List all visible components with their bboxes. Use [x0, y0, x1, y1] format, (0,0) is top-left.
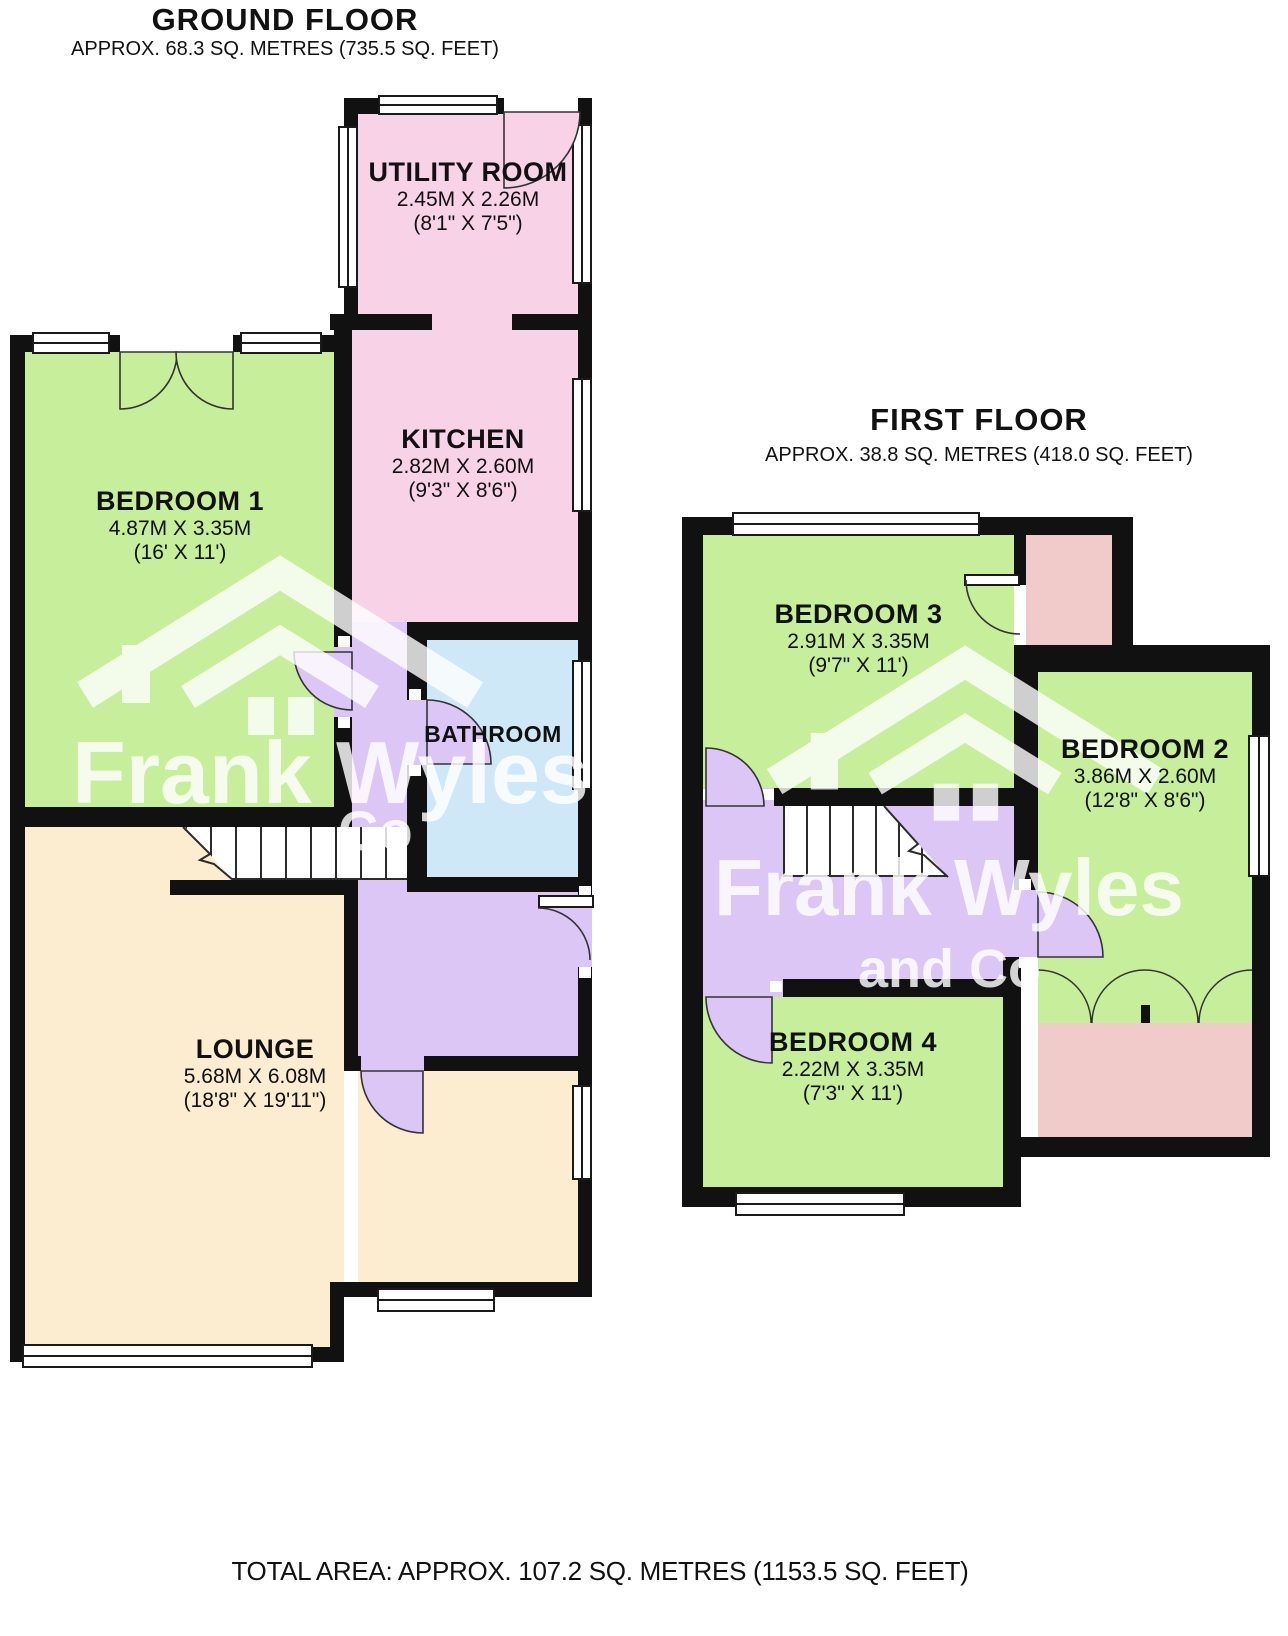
room-dims-metric: 2.45M X 2.26M — [368, 188, 568, 213]
wall — [10, 827, 25, 1362]
room-dims-imperial: (18'8" X 19'11") — [95, 1089, 415, 1114]
french-door-opening — [120, 335, 233, 352]
wardrobe-door-arc — [1145, 970, 1198, 1023]
front-door-leaf — [538, 895, 594, 908]
room-name: BEDROOM 4 — [703, 1028, 1003, 1058]
wall — [170, 880, 345, 895]
wall — [1252, 645, 1270, 1157]
room-dims-metric: 2.91M X 3.35M — [703, 630, 1014, 655]
kitchen-label: KITCHEN 2.82M X 2.60M (9'3" X 8'6") — [348, 425, 578, 504]
room-name: KITCHEN — [348, 425, 578, 455]
room-name: BEDROOM 1 — [25, 487, 335, 517]
wardrobe-door-arc — [1199, 970, 1252, 1023]
wardrobe-door-arc — [1092, 970, 1145, 1023]
floorplan-page: GROUND FLOOR APPROX. 68.3 SQ. METRES (73… — [0, 0, 1288, 1636]
window — [32, 332, 110, 354]
window — [22, 1344, 313, 1368]
bedroom3-label: BEDROOM 3 2.91M X 3.35M (9'7" X 11') — [703, 600, 1014, 679]
wall — [407, 877, 592, 892]
wall — [1112, 517, 1133, 645]
first-floor-title: FIRST FLOOR — [729, 402, 1229, 438]
brand-watermark-text: Frank Wyles — [714, 842, 1184, 934]
room-name: BEDROOM 2 — [1038, 735, 1252, 765]
room-name: BEDROOM 3 — [703, 600, 1014, 630]
wall — [10, 335, 25, 827]
brand-watermark-suffix: Co — [338, 798, 413, 863]
room-dims-metric: 3.86M X 2.60M — [1038, 765, 1252, 790]
room-dims-imperial: (9'3" X 8'6") — [348, 479, 578, 504]
bedroom1-label: BEDROOM 1 4.87M X 3.35M (16' X 11') — [25, 487, 335, 566]
wall — [512, 314, 592, 330]
wall — [682, 517, 703, 1207]
room-dims-imperial: (16' X 11') — [25, 541, 335, 566]
room-name: BATHROOM — [408, 722, 578, 747]
utility-room-label: UTILITY ROOM 2.45M X 2.26M (8'1" X 7'5") — [368, 158, 568, 237]
ground-floor-subtitle: APPROX. 68.3 SQ. METRES (735.5 SQ. FEET) — [45, 38, 525, 61]
window — [378, 95, 498, 115]
window — [240, 332, 322, 354]
room-name: LOUNGE — [95, 1035, 415, 1065]
bathroom-label: BATHROOM — [408, 722, 578, 747]
front-door-arc — [538, 908, 590, 960]
bedroom2-label: BEDROOM 2 3.86M X 2.60M (12'8" X 8'6") — [1038, 735, 1252, 814]
room-dims-imperial: (7'3" X 11') — [703, 1082, 1003, 1107]
room-dims-imperial: (12'8" X 8'6") — [1038, 789, 1252, 814]
room-dims-metric: 4.87M X 3.35M — [25, 517, 335, 542]
utility-kitchen-opening — [432, 314, 512, 330]
ground-floor-title: GROUND FLOOR — [55, 2, 515, 38]
brand-logo-watermark — [70, 545, 490, 735]
room-name: UTILITY ROOM — [368, 158, 568, 188]
door-arc — [706, 748, 764, 806]
door-jamb — [579, 967, 591, 978]
door-jamb — [770, 981, 782, 992]
total-area-text: TOTAL AREA: APPROX. 107.2 SQ. METRES (11… — [0, 1556, 1200, 1587]
window — [732, 512, 980, 536]
wardrobe-door-arc — [1038, 970, 1091, 1023]
staircase-break-line — [183, 827, 235, 880]
window — [572, 1085, 592, 1180]
bedroom4-label: BEDROOM 4 2.22M X 3.35M (7'3" X 11') — [703, 1028, 1003, 1107]
french-door-arc — [120, 352, 177, 409]
window — [338, 126, 358, 288]
wall — [1003, 1137, 1270, 1157]
room-dims-metric: 5.68M X 6.08M — [95, 1065, 415, 1090]
french-door-arc — [176, 352, 233, 409]
wall — [330, 314, 432, 330]
window — [377, 1288, 495, 1312]
window — [735, 1192, 905, 1216]
room-dims-metric: 2.22M X 3.35M — [703, 1058, 1003, 1083]
room-dims-imperial: (9'7" X 11') — [703, 654, 1014, 679]
brand-watermark-suffix: and Co — [858, 938, 1041, 1000]
lounge-label: LOUNGE 5.68M X 6.08M (18'8" X 19'11") — [95, 1035, 415, 1114]
wall — [424, 1056, 592, 1071]
first-floor-subtitle: APPROX. 38.8 SQ. METRES (418.0 SQ. FEET) — [709, 444, 1249, 467]
room-dims-imperial: (8'1" X 7'5") — [368, 212, 568, 237]
room-dims-metric: 2.82M X 2.60M — [348, 455, 578, 480]
wardrobe-fill — [1038, 1023, 1252, 1137]
